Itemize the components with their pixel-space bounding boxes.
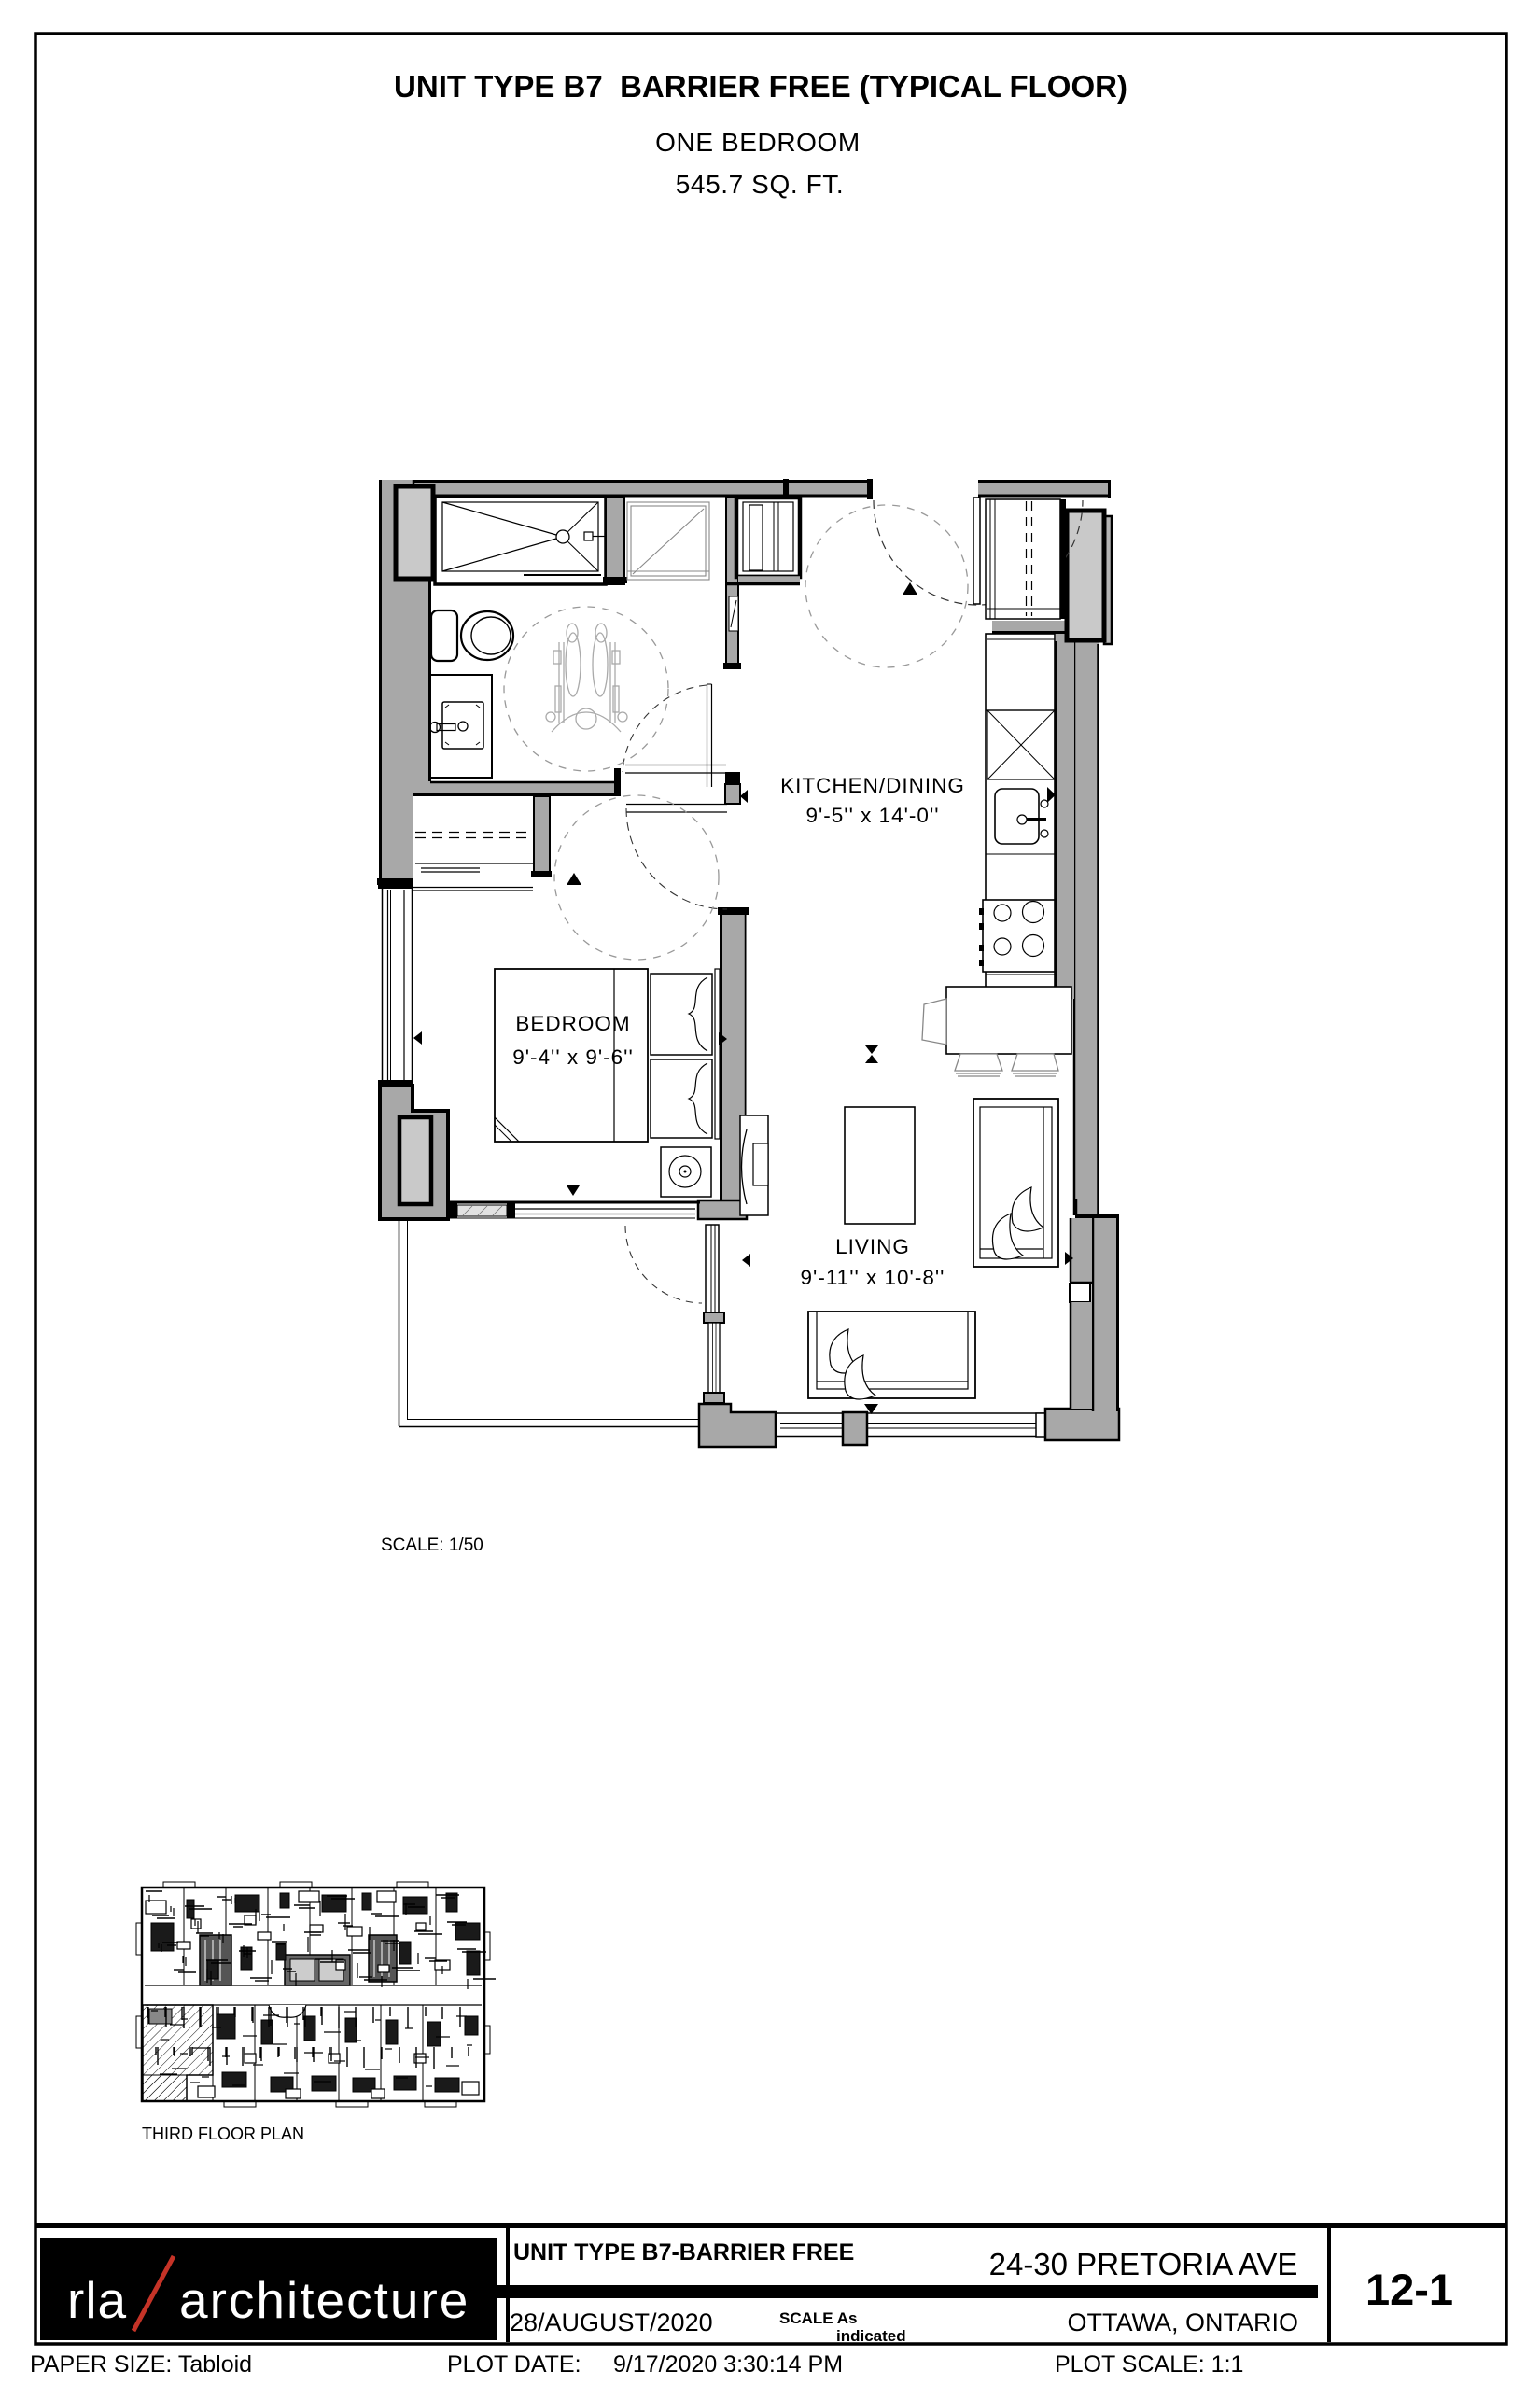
svg-text:24-30 PRETORIA AVE: 24-30 PRETORIA AVE	[989, 2247, 1298, 2281]
svg-text:THIRD FLOOR PLAN: THIRD FLOOR PLAN	[142, 2125, 304, 2143]
svg-text:28/AUGUST/2020: 28/AUGUST/2020	[510, 2308, 713, 2336]
svg-text:9/17/2020 3:30:14 PM: 9/17/2020 3:30:14 PM	[613, 2351, 843, 2378]
svg-text:545.7 SQ. FT.: 545.7 SQ. FT.	[676, 170, 845, 199]
svg-text:rla: rla	[67, 2271, 127, 2329]
svg-text:ONE BEDROOM: ONE BEDROOM	[655, 128, 861, 157]
svg-text:PLOT DATE:: PLOT DATE:	[447, 2351, 581, 2378]
svg-text:SCALE As: SCALE As	[779, 2309, 857, 2327]
svg-text:9'-5'' x 14'-0'': 9'-5'' x 14'-0''	[805, 804, 939, 827]
svg-text:PAPER SIZE: Tabloid: PAPER SIZE: Tabloid	[30, 2351, 252, 2378]
svg-text:KITCHEN/DINING: KITCHEN/DINING	[780, 774, 965, 797]
svg-text:12-1: 12-1	[1365, 2265, 1453, 2314]
svg-text:LIVING: LIVING	[835, 1235, 910, 1258]
svg-text:BEDROOM: BEDROOM	[515, 1012, 630, 1035]
svg-text:UNIT TYPE B7-BARRIER FREE: UNIT TYPE B7-BARRIER FREE	[513, 2239, 854, 2266]
svg-text:OTTAWA, ONTARIO: OTTAWA, ONTARIO	[1068, 2308, 1298, 2336]
svg-text:PLOT SCALE: 1:1: PLOT SCALE: 1:1	[1055, 2351, 1243, 2378]
svg-text:architecture: architecture	[179, 2271, 469, 2329]
svg-text:9'-11'' x 10'-8'': 9'-11'' x 10'-8''	[801, 1266, 945, 1289]
svg-text:SCALE: 1/50: SCALE: 1/50	[381, 1536, 483, 1555]
svg-text:UNIT TYPE B7 BARRIER FREE (TY: UNIT TYPE B7 BARRIER FREE (TYPICAL FLOOR…	[394, 69, 1127, 104]
svg-text:9'-4'' x 9'-6'': 9'-4'' x 9'-6''	[512, 1045, 634, 1069]
svg-text:indicated: indicated	[836, 2327, 906, 2345]
